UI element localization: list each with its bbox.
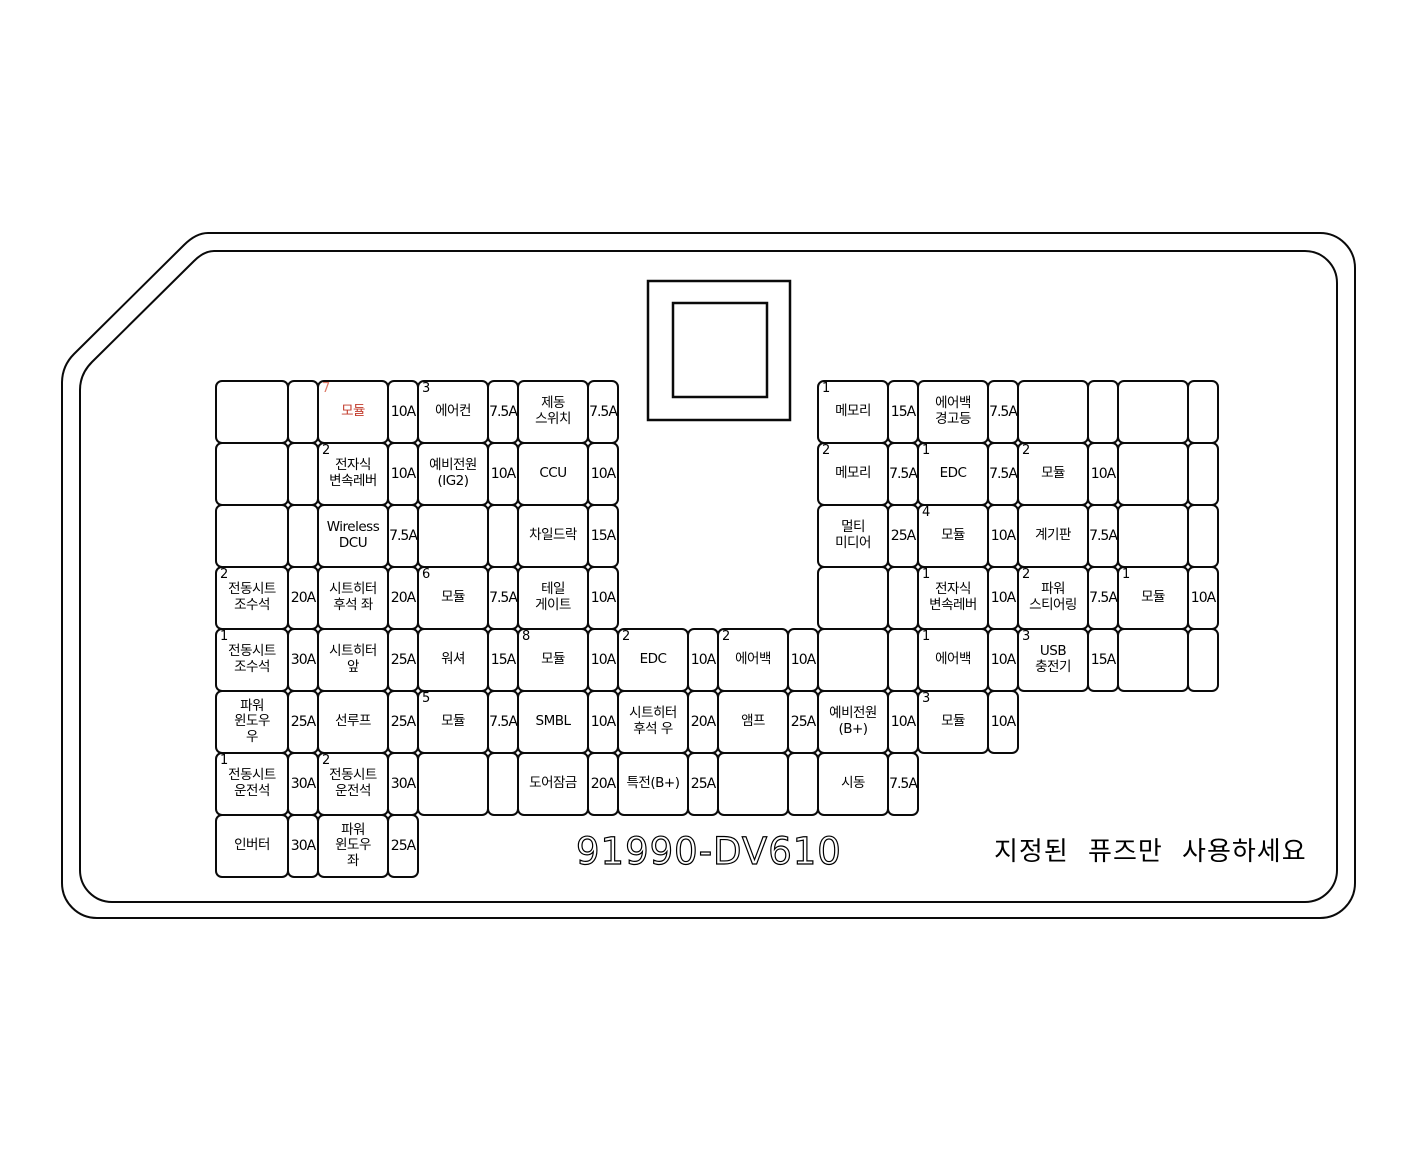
fuse-name: 파워 윈도우 우 — [234, 699, 270, 746]
fuse-amp-cell: 25A — [887, 504, 919, 568]
fuse-amp-cell: 10A — [987, 690, 1019, 754]
fuse-amp-cell: 10A — [387, 380, 419, 444]
fuse-amp-cell: 30A — [387, 752, 419, 816]
fuse-name: 차일드락 — [529, 528, 577, 544]
fuse-index: 1 — [1122, 568, 1130, 582]
fuse-label-cell: 2전자식 변속레버 — [317, 442, 389, 506]
fuse-amp-cell — [1187, 380, 1219, 444]
fuse-name: 모듈 — [1041, 466, 1065, 482]
fuse-label-cell — [1117, 628, 1189, 692]
fuse-amp-cell: 30A — [287, 628, 319, 692]
fuse-label-cell: 워셔 — [417, 628, 489, 692]
fuse-amp-cell — [487, 752, 519, 816]
fuse-amp-cell: 25A — [687, 752, 719, 816]
fuse-label-cell: 선루프 — [317, 690, 389, 754]
fuse-amp-cell — [287, 380, 319, 444]
fuse-amp-cell: 7.5A — [987, 380, 1019, 444]
fuse-label-cell — [817, 628, 889, 692]
fuse-label-cell: 5모듈 — [417, 690, 489, 754]
fuse-label-cell — [1117, 380, 1189, 444]
fuse-name: 메모리 — [835, 404, 871, 420]
fuse-amp-cell: 20A — [587, 752, 619, 816]
fuse-amp-cell: 7.5A — [387, 504, 419, 568]
fuse-amp-cell: 10A — [587, 442, 619, 506]
fuse-label-cell: 2전동시트 운전석 — [317, 752, 389, 816]
fuse-amp-cell: 30A — [287, 814, 319, 878]
fuse-label-cell — [215, 504, 289, 568]
fuse-label-cell: 예비전원 (IG2) — [417, 442, 489, 506]
fuse-label-cell: CCU — [517, 442, 589, 506]
fuse-label-cell — [1117, 442, 1189, 506]
fuse-name: 시트히터 후석 우 — [629, 706, 677, 737]
fuse-label-cell: 1전동시트 조수석 — [215, 628, 289, 692]
fuse-index: 2 — [322, 444, 330, 458]
fuse-amp-cell: 20A — [687, 690, 719, 754]
fuse-label-cell — [717, 752, 789, 816]
fuse-amp-cell: 10A — [387, 442, 419, 506]
fuse-name: 워셔 — [441, 652, 465, 668]
fuse-index: 1 — [220, 754, 228, 768]
fuse-amp-cell: 10A — [987, 628, 1019, 692]
fuse-name: 모듈 — [341, 404, 365, 420]
fuse-label-cell: 시동 — [817, 752, 889, 816]
fuse-label-cell — [417, 504, 489, 568]
fuse-name: 멀티 미디어 — [835, 520, 871, 551]
fuse-amp-cell: 10A — [1187, 566, 1219, 630]
fuse-label-cell: 테일 게이트 — [517, 566, 589, 630]
fuse-label-cell: 앰프 — [717, 690, 789, 754]
fuse-amp-cell — [287, 442, 319, 506]
fuse-label-cell: 4모듈 — [917, 504, 989, 568]
fuse-amp-cell: 7.5A — [987, 442, 1019, 506]
fuse-index: 2 — [322, 754, 330, 768]
fuse-amp-cell: 7.5A — [487, 380, 519, 444]
fuse-name: Wireless DCU — [327, 520, 380, 551]
fuse-label-cell: 1EDC — [917, 442, 989, 506]
fuse-label-cell: 3모듈 — [917, 690, 989, 754]
fuse-box-diagram: 7모듈10A3에어컨7.5A제동 스위치7.5A1메모리15A에어백 경고등7.… — [0, 0, 1417, 1157]
fuse-name: 제동 스위치 — [535, 396, 571, 427]
fuse-label-cell: 7모듈 — [317, 380, 389, 444]
fuse-index: 2 — [722, 630, 730, 644]
fuse-amp-cell: 10A — [787, 628, 819, 692]
fuse-label-cell: 1에어백 — [917, 628, 989, 692]
fuse-name: EDC — [940, 466, 967, 482]
fuse-label-cell: 시트히터 후석 우 — [617, 690, 689, 754]
fuse-label-cell: 3USB 충전기 — [1017, 628, 1089, 692]
fuse-name: 전자식 변속레버 — [329, 458, 377, 489]
fuse-name: 에어백 경고등 — [935, 396, 971, 427]
fuse-label-cell: 예비전원 (B+) — [817, 690, 889, 754]
fuse-label-cell: 파워 윈도우 좌 — [317, 814, 389, 878]
fuse-label-cell: 2메모리 — [817, 442, 889, 506]
fuse-index: 4 — [922, 506, 930, 520]
fuse-label-cell: 1전자식 변속레버 — [917, 566, 989, 630]
fuse-amp-cell — [887, 628, 919, 692]
fuse-label-cell: 3에어컨 — [417, 380, 489, 444]
fuse-label-cell: 차일드락 — [517, 504, 589, 568]
fuse-name: 계기판 — [1035, 528, 1071, 544]
fuse-index: 6 — [422, 568, 430, 582]
fuse-name: 메모리 — [835, 466, 871, 482]
fuse-label-cell: 시트히터 후석 좌 — [317, 566, 389, 630]
fuse-label-cell: 2전동시트 조수석 — [215, 566, 289, 630]
fuse-index: 8 — [522, 630, 530, 644]
fuse-amp-cell: 20A — [287, 566, 319, 630]
fuse-name: 모듈 — [1141, 590, 1165, 606]
fuse-index: 5 — [422, 692, 430, 706]
fuse-name: 시트히터 앞 — [329, 644, 377, 675]
relay-square-inner — [673, 303, 767, 397]
fuse-name: 에어백 — [935, 652, 971, 668]
fuse-amp-cell: 20A — [387, 566, 419, 630]
fuse-label-cell — [215, 442, 289, 506]
fuse-index: 1 — [922, 444, 930, 458]
fuse-name: 모듈 — [941, 528, 965, 544]
fuse-label-cell: 2에어백 — [717, 628, 789, 692]
fuse-label-cell: 파워 윈도우 우 — [215, 690, 289, 754]
fuse-label-cell — [1117, 504, 1189, 568]
fuse-label-cell — [1017, 380, 1089, 444]
fuse-label-cell: 6모듈 — [417, 566, 489, 630]
notice-text: 지정된 퓨즈만 사용하세요 — [994, 831, 1307, 868]
fuse-name: 전동시트 조수석 — [228, 644, 276, 675]
fuse-amp-cell: 15A — [1087, 628, 1119, 692]
fuse-name: 전동시트 운전석 — [329, 768, 377, 799]
fuse-label-cell: 2파워 스티어링 — [1017, 566, 1089, 630]
fuse-amp-cell: 7.5A — [1087, 504, 1119, 568]
fuse-index: 1 — [922, 568, 930, 582]
fuse-index: 3 — [1022, 630, 1030, 644]
fuse-name: 선루프 — [335, 714, 371, 730]
fuse-amp-cell: 7.5A — [887, 442, 919, 506]
fuse-label-cell: 2EDC — [617, 628, 689, 692]
fuse-amp-cell — [887, 566, 919, 630]
fuse-label-cell: 에어백 경고등 — [917, 380, 989, 444]
fuse-amp-cell: 10A — [687, 628, 719, 692]
fuse-index: 2 — [220, 568, 228, 582]
fuse-index: 2 — [822, 444, 830, 458]
fuse-label-cell: Wireless DCU — [317, 504, 389, 568]
fuse-name: 모듈 — [541, 652, 565, 668]
fuse-name: 전동시트 조수석 — [228, 582, 276, 613]
fuse-name: 파워 윈도우 좌 — [335, 823, 371, 870]
fuse-amp-cell: 10A — [587, 566, 619, 630]
fuse-name: 모듈 — [441, 590, 465, 606]
fuse-amp-cell: 7.5A — [487, 690, 519, 754]
fuse-amp-cell — [1187, 442, 1219, 506]
fuse-amp-cell — [287, 504, 319, 568]
fuse-index: 3 — [422, 382, 430, 396]
fuse-name: 시트히터 후석 좌 — [329, 582, 377, 613]
fuse-amp-cell — [487, 504, 519, 568]
fuse-label-cell: 제동 스위치 — [517, 380, 589, 444]
fuse-name: CCU — [539, 466, 566, 482]
fuse-amp-cell: 10A — [887, 690, 919, 754]
fuse-label-cell: 1메모리 — [817, 380, 889, 444]
fuse-name: 예비전원 (B+) — [829, 706, 877, 737]
fuse-name: 예비전원 (IG2) — [429, 458, 477, 489]
fuse-index: 2 — [622, 630, 630, 644]
fuse-amp-cell: 25A — [387, 628, 419, 692]
fuse-label-cell: 2모듈 — [1017, 442, 1089, 506]
fuse-name: EDC — [640, 652, 667, 668]
fuse-index: 3 — [922, 692, 930, 706]
fuse-amp-cell: 10A — [987, 504, 1019, 568]
fuse-name: 도어잠금 — [529, 776, 577, 792]
fuse-amp-cell: 15A — [587, 504, 619, 568]
fuse-index: 7 — [322, 382, 330, 396]
fuse-amp-cell — [1187, 628, 1219, 692]
fuse-name: 모듈 — [441, 714, 465, 730]
fuse-name: 에어컨 — [435, 404, 471, 420]
fuse-amp-cell: 10A — [987, 566, 1019, 630]
fuse-name: 특전(B+) — [627, 776, 680, 792]
fuse-label-cell — [215, 380, 289, 444]
fuse-label-cell: SMBL — [517, 690, 589, 754]
fuse-label-cell: 도어잠금 — [517, 752, 589, 816]
fuse-name: 앰프 — [741, 714, 765, 730]
fuse-label-cell — [817, 566, 889, 630]
fuse-amp-cell: 7.5A — [1087, 566, 1119, 630]
fuse-amp-cell: 25A — [787, 690, 819, 754]
fuse-amp-cell — [1187, 504, 1219, 568]
part-number: 91990-DV610 — [576, 830, 842, 873]
fuse-index: 2 — [1022, 444, 1030, 458]
fuse-label-cell: 멀티 미디어 — [817, 504, 889, 568]
fuse-amp-cell: 7.5A — [887, 752, 919, 816]
fuse-index: 2 — [1022, 568, 1030, 582]
fuse-label-cell: 특전(B+) — [617, 752, 689, 816]
fuse-amp-cell — [787, 752, 819, 816]
fuse-amp-cell: 25A — [287, 690, 319, 754]
fuse-amp-cell: 10A — [487, 442, 519, 506]
fuse-label-cell: 인버터 — [215, 814, 289, 878]
fuse-amp-cell: 15A — [487, 628, 519, 692]
fuse-index: 1 — [220, 630, 228, 644]
fuse-amp-cell: 25A — [387, 814, 419, 878]
fuse-name: 인버터 — [234, 838, 270, 854]
fuse-label-cell: 1모듈 — [1117, 566, 1189, 630]
fuse-name: 전동시트 운전석 — [228, 768, 276, 799]
fuse-amp-cell: 25A — [387, 690, 419, 754]
fuse-name: 파워 스티어링 — [1029, 582, 1077, 613]
fuse-amp-cell: 15A — [887, 380, 919, 444]
fuse-label-cell: 8모듈 — [517, 628, 589, 692]
fuse-name: USB 충전기 — [1035, 644, 1071, 675]
fuse-label-cell: 시트히터 앞 — [317, 628, 389, 692]
fuse-index: 1 — [822, 382, 830, 396]
fuse-amp-cell: 7.5A — [587, 380, 619, 444]
fuse-amp-cell: 30A — [287, 752, 319, 816]
fuse-label-cell — [417, 752, 489, 816]
fuse-name: 에어백 — [735, 652, 771, 668]
fuse-amp-cell: 10A — [587, 628, 619, 692]
fuse-amp-cell: 10A — [587, 690, 619, 754]
fuse-label-cell: 계기판 — [1017, 504, 1089, 568]
fuse-name: 모듈 — [941, 714, 965, 730]
fuse-name: 전자식 변속레버 — [929, 582, 977, 613]
fuse-amp-cell — [1087, 380, 1119, 444]
fuse-index: 1 — [922, 630, 930, 644]
fuse-name: 테일 게이트 — [535, 582, 571, 613]
fuse-amp-cell: 10A — [1087, 442, 1119, 506]
fuse-name: SMBL — [536, 714, 571, 730]
fuse-label-cell: 1전동시트 운전석 — [215, 752, 289, 816]
fuse-name: 시동 — [841, 776, 865, 792]
fuse-amp-cell: 7.5A — [487, 566, 519, 630]
